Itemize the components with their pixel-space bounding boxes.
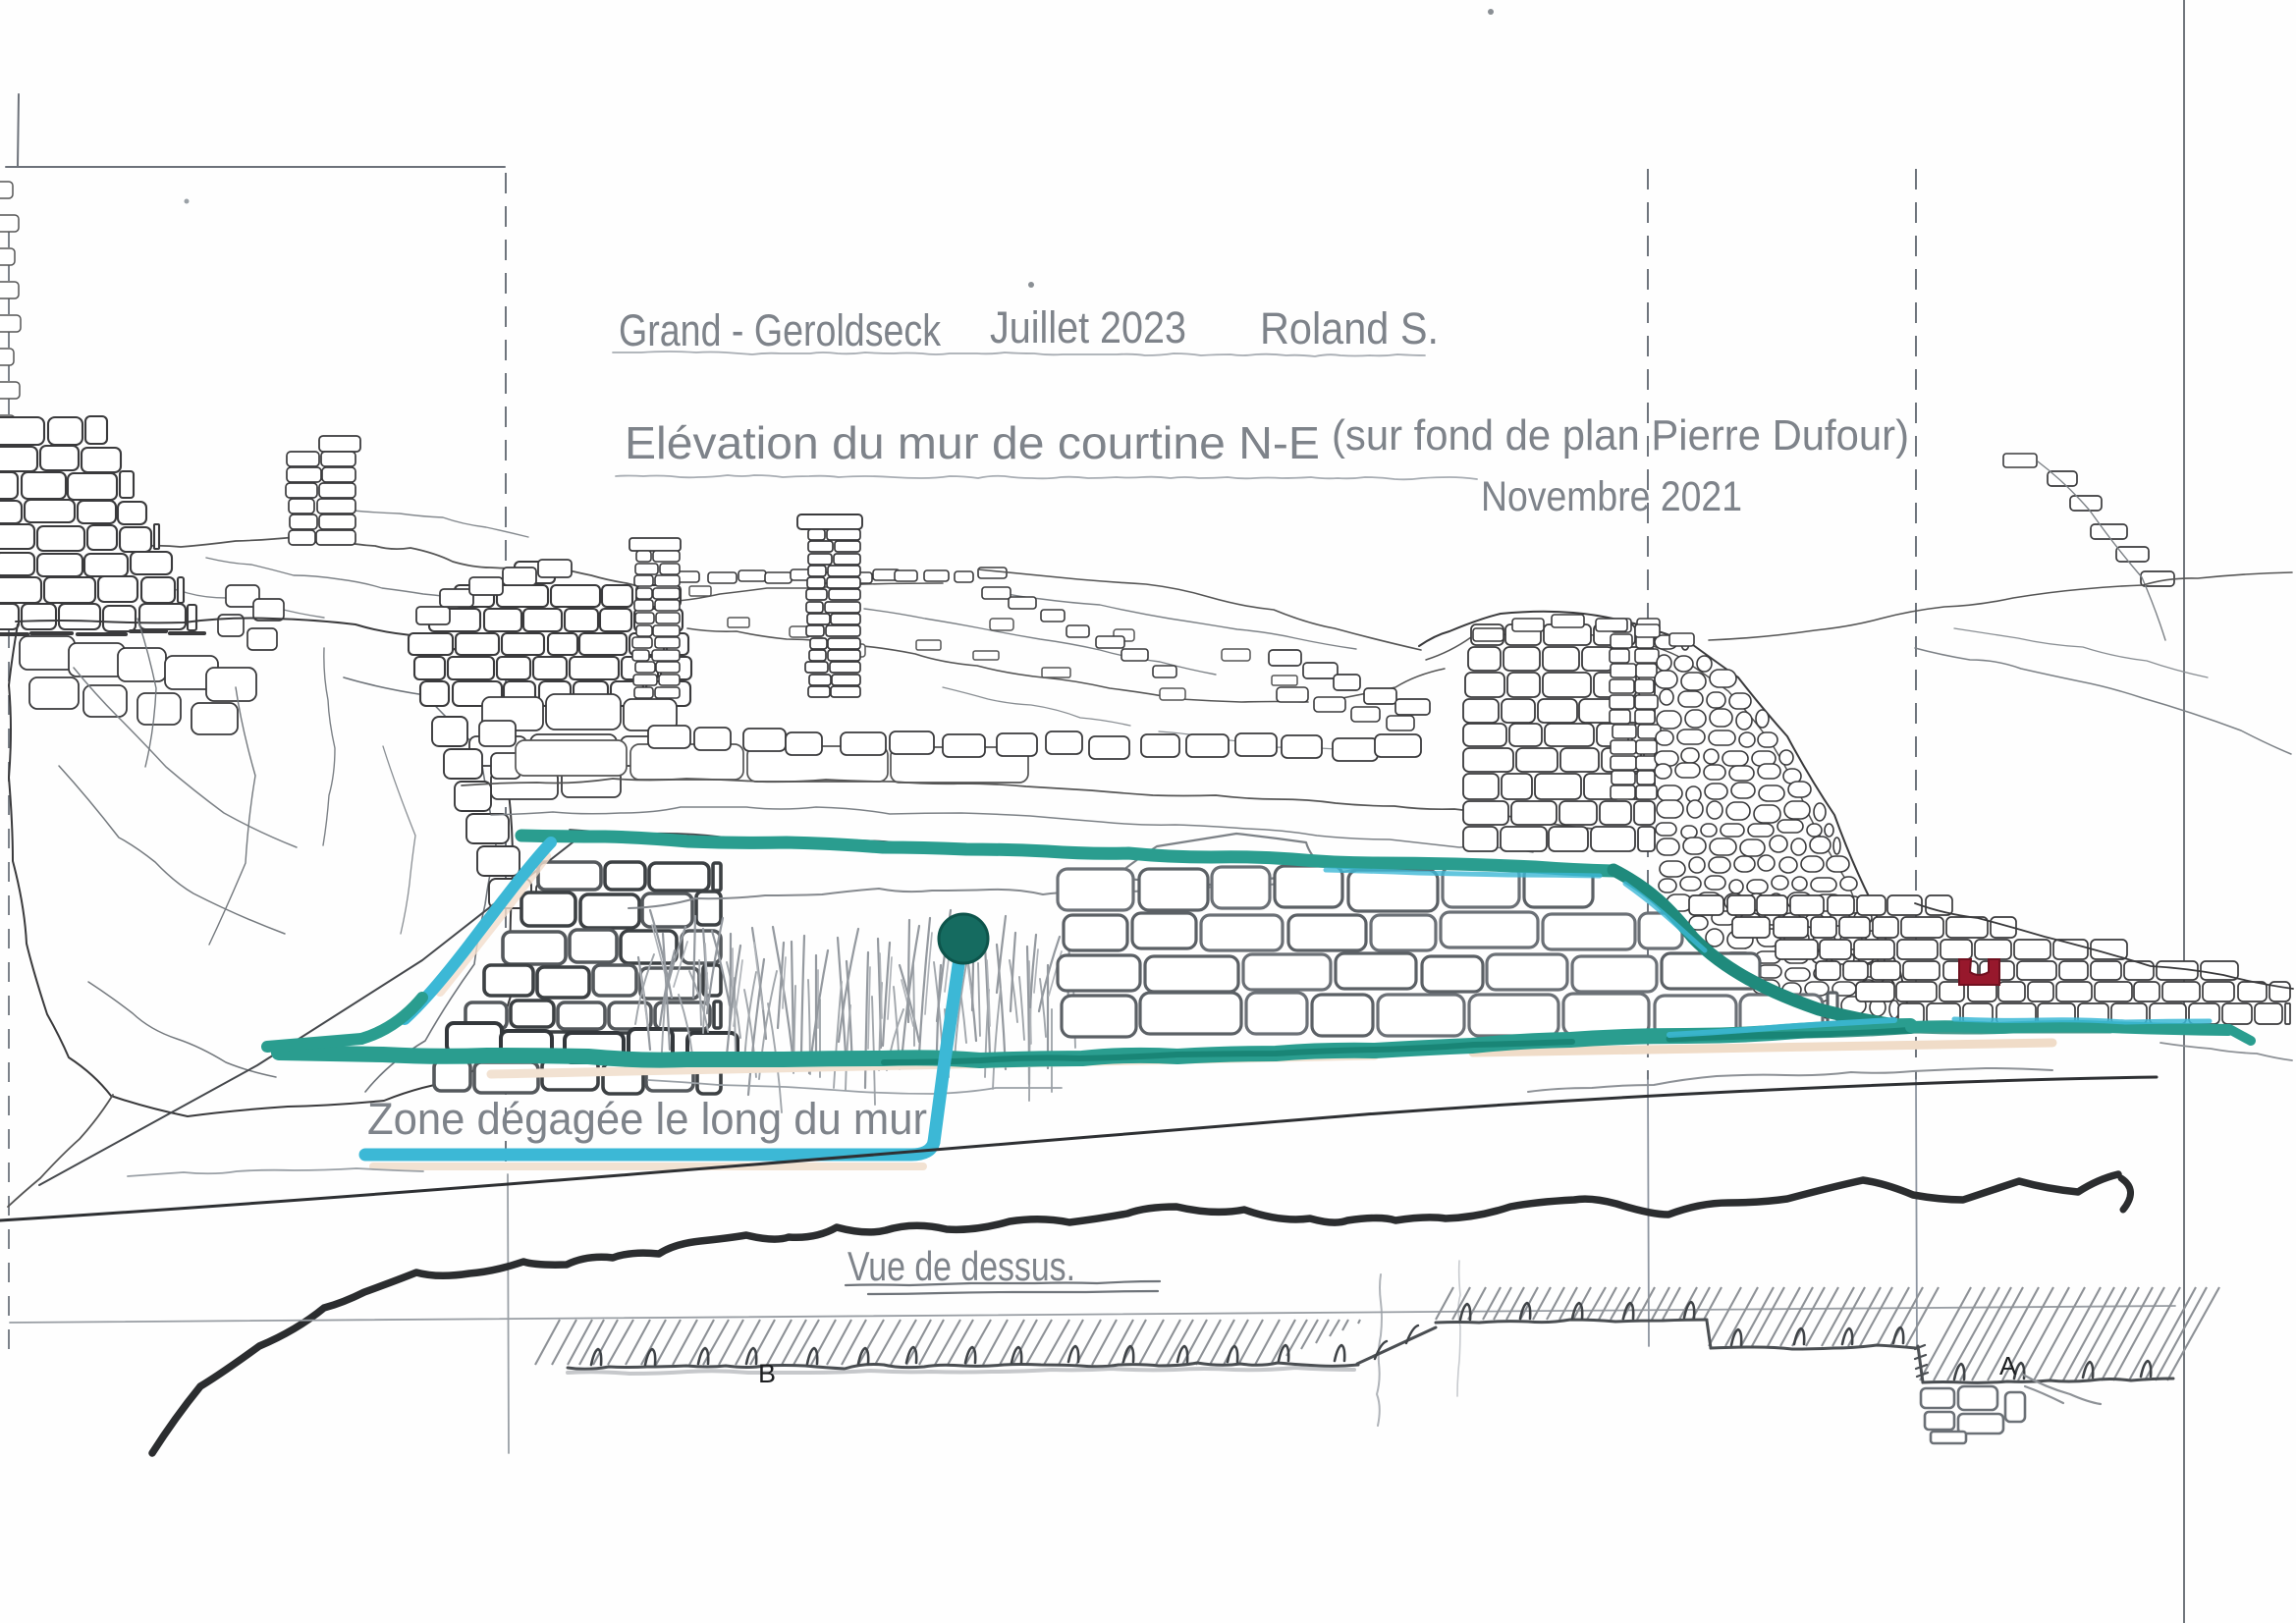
- svg-text:Grand - Geroldseck: Grand - Geroldseck: [619, 305, 941, 355]
- svg-text:Roland S.: Roland S.: [1260, 303, 1439, 353]
- svg-text:B: B: [758, 1359, 776, 1388]
- svg-text:(sur fond de plan Pierre Dufou: (sur fond de plan Pierre Dufour): [1332, 411, 1909, 460]
- svg-text:Elévation du mur de courtine N: Elévation du mur de courtine N-E: [625, 417, 1320, 468]
- svg-text:Novembre 2021: Novembre 2021: [1481, 473, 1742, 520]
- svg-text:A: A: [1999, 1351, 2017, 1380]
- svg-text:Juillet 2023: Juillet 2023: [990, 302, 1186, 352]
- svg-text:Zone dégagée le long du mur: Zone dégagée le long du mur: [367, 1094, 927, 1144]
